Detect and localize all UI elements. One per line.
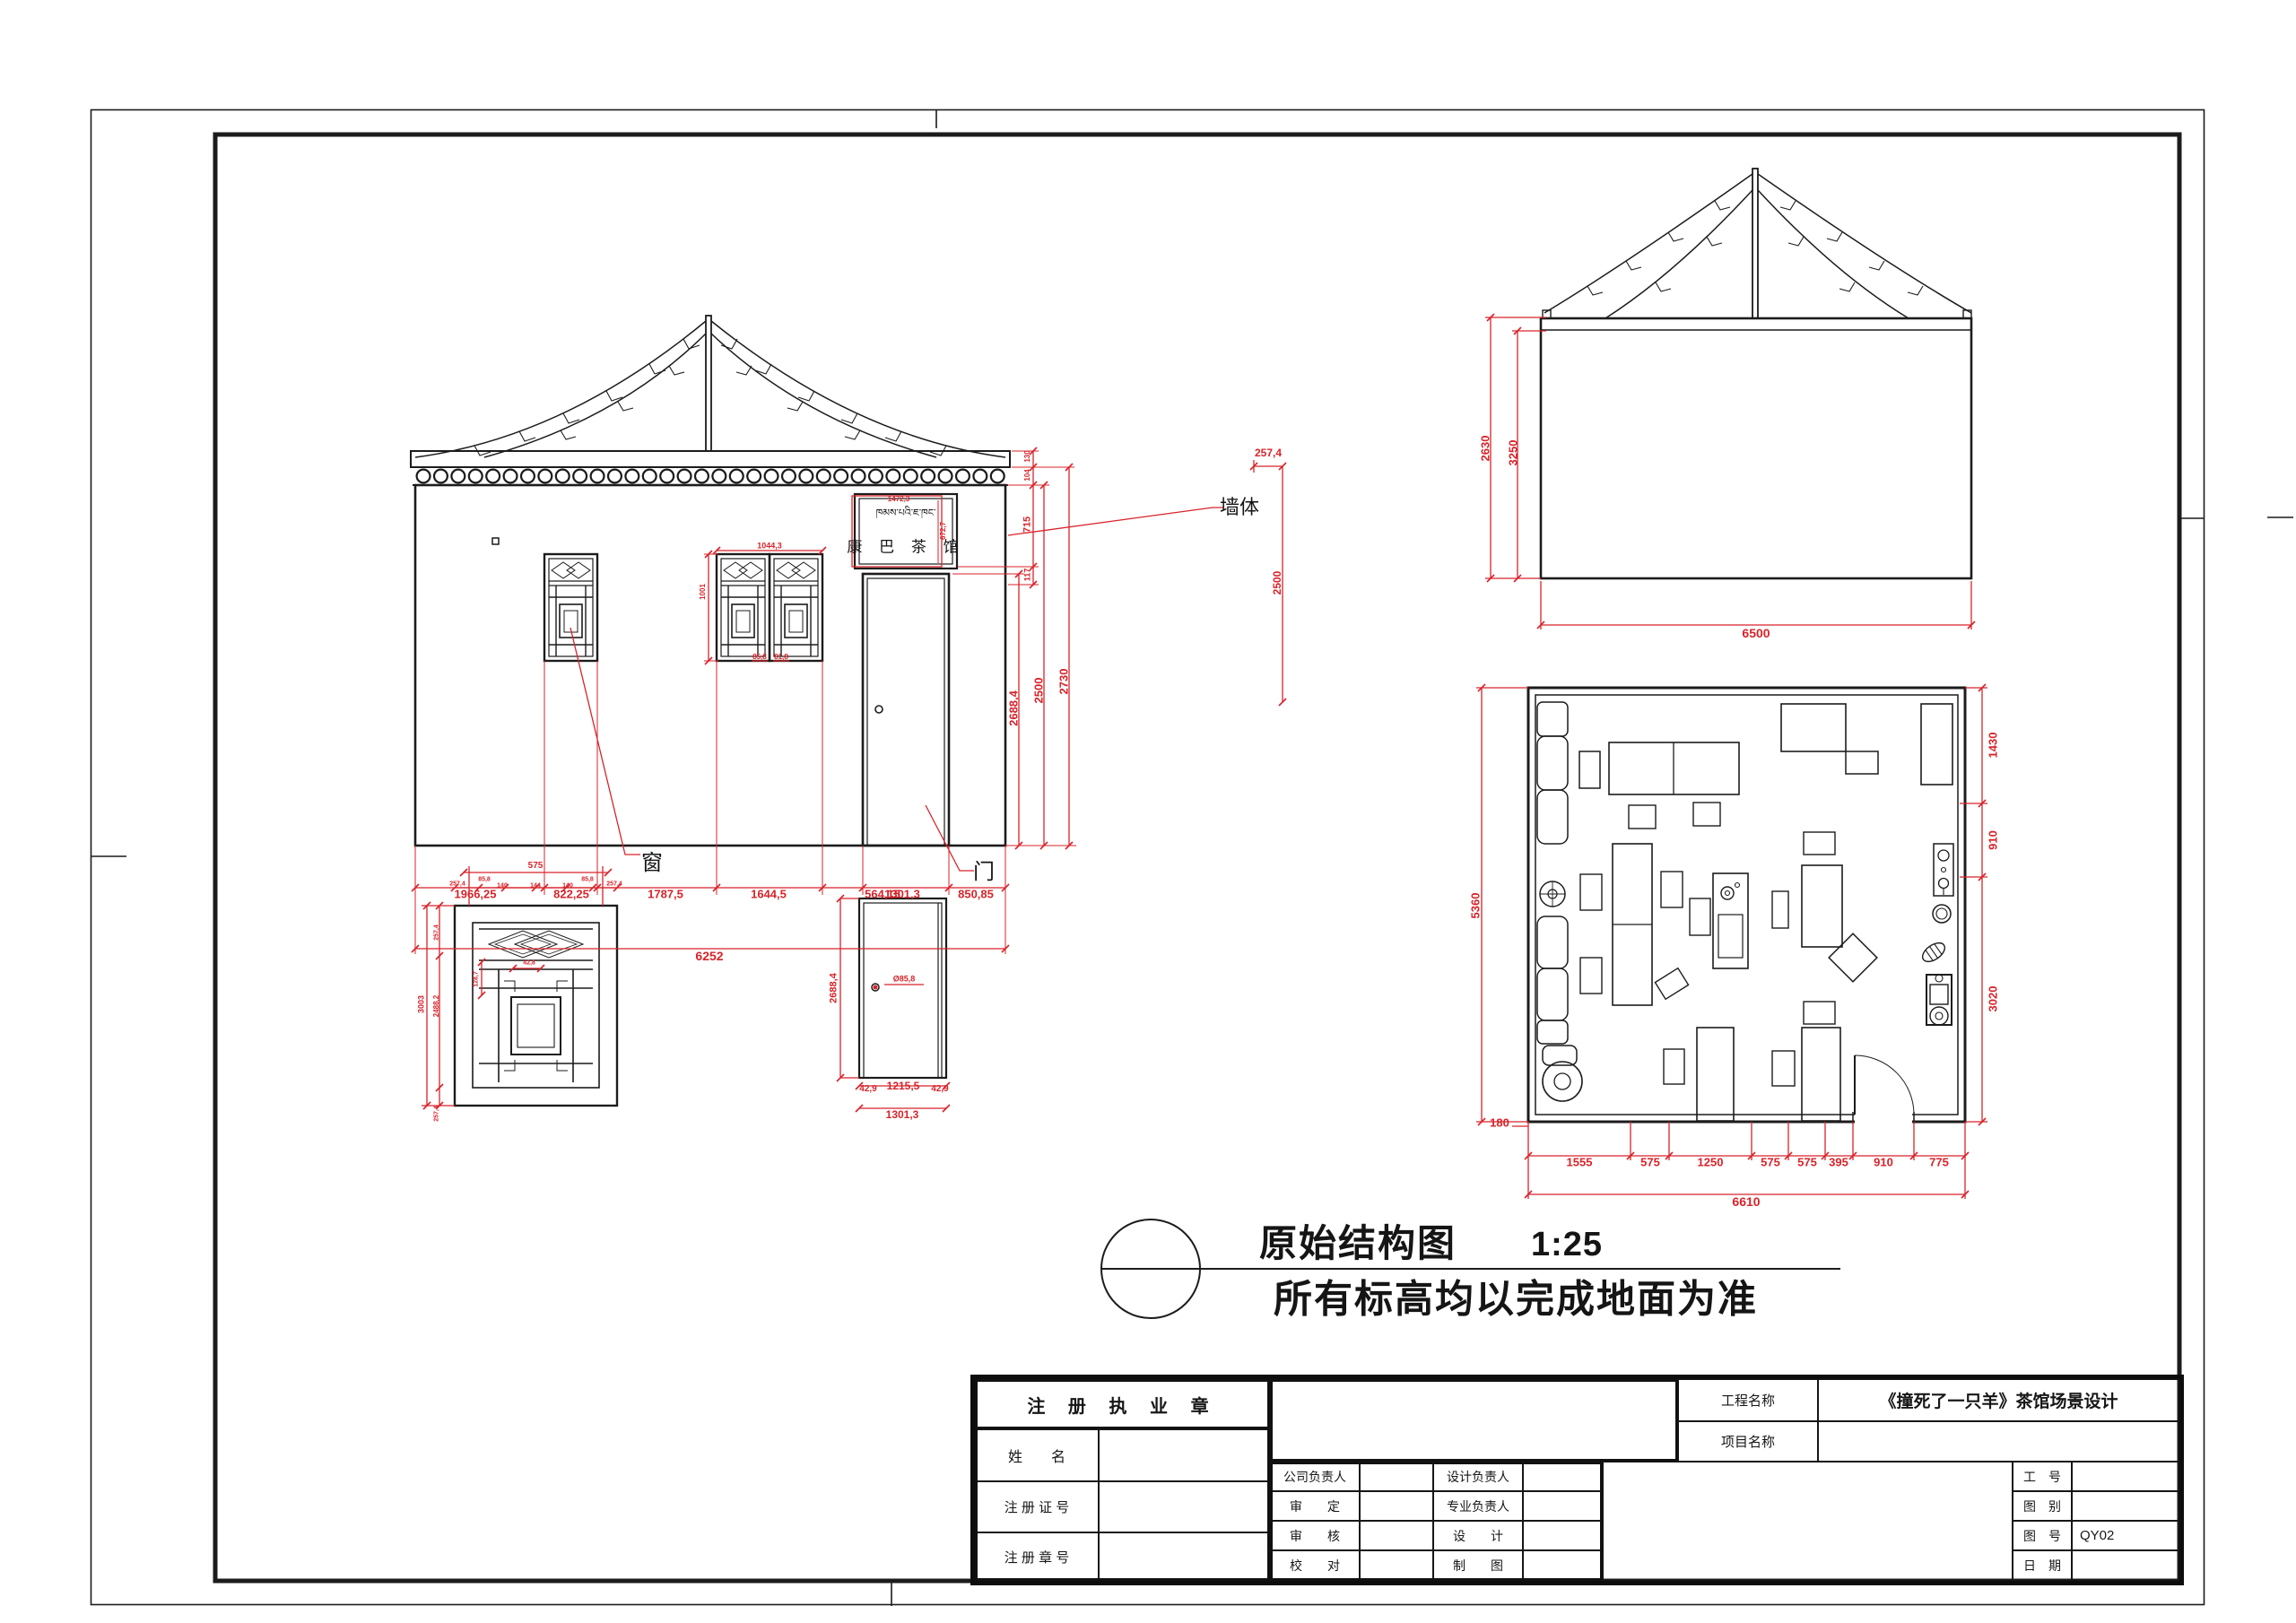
dim-label: 130	[1024, 450, 1031, 462]
dim-label: 2500	[1033, 678, 1045, 704]
dim-label: 1555	[1567, 1157, 1593, 1168]
dim-label: 850,85	[958, 889, 994, 900]
sign-tibetan-text: ཁམས་པའི་ཇ་ཁང་	[876, 509, 936, 519]
dim-label: 1644,5	[751, 889, 787, 900]
dim-label: 1787,5	[648, 889, 683, 900]
dim-label: 257,4	[1255, 447, 1282, 458]
dim-label: 104	[1024, 469, 1031, 481]
front-elevation-drawing	[411, 316, 1010, 846]
dim-label: 117	[1024, 568, 1032, 582]
dim-label: 3003	[418, 995, 426, 1013]
dim-label: 257,4	[449, 881, 465, 888]
dim-label: 575	[528, 862, 544, 871]
dim-label: 81,8	[774, 654, 788, 661]
dim-label: 1430	[1987, 733, 1999, 759]
dim-label: 85,8	[478, 877, 491, 883]
dim-label: 775	[1929, 1157, 1949, 1168]
dim-label: 6252	[695, 950, 723, 962]
dim-label: 42,9	[931, 1085, 948, 1094]
dim-label: 42,9	[859, 1085, 876, 1094]
door-callout-label: 门	[973, 862, 995, 883]
dim-label: 144	[530, 883, 541, 890]
wall-callout-label: 墙体	[1220, 498, 1259, 517]
dim-label: 6500	[1742, 627, 1770, 639]
dim-label: 6610	[1732, 1195, 1760, 1208]
drawing-sheet: 1966,25 822,25 1787,5 1644,5 564,15 1301…	[0, 0, 2296, 1623]
dim-label: 715	[1023, 516, 1033, 533]
dimension-lines	[412, 314, 1987, 1199]
dim-label: 128,7	[474, 971, 480, 987]
dim-label: 2688,4	[830, 973, 839, 1003]
dim-label: 822,25	[553, 889, 589, 900]
drawing-subtitle: 所有标高均以完成地面为准	[1274, 1281, 1758, 1320]
dim-label: 140	[562, 883, 573, 890]
dim-label: 575	[1797, 1157, 1817, 1168]
dim-label: 2488,2	[433, 995, 440, 1017]
door-detail-drawing	[859, 898, 946, 1078]
titleblock-outer-border	[970, 1375, 2184, 1585]
dim-label: 2730	[1058, 669, 1070, 695]
title-block: 注 册 执 业 章 姓 名 注 册 证 号 注 册 章 号 公司负责人 设计负责…	[975, 1379, 2179, 1581]
dim-label: 2500	[1272, 571, 1283, 595]
window-detail-drawing	[455, 906, 617, 1106]
dim-label: Ø85,8	[893, 976, 916, 984]
dim-label: 910	[1874, 1157, 1893, 1168]
dim-label: 1472,3	[888, 496, 909, 503]
window-callout-label: 窗	[641, 853, 663, 874]
dim-label: 257,4	[606, 881, 622, 888]
floor-plan-drawing	[1528, 688, 1965, 1124]
dim-label: 257,4	[434, 924, 440, 941]
dim-label: 1966,25	[455, 889, 497, 900]
dim-label: 910	[1987, 830, 1999, 850]
side-elevation-drawing	[1541, 169, 1971, 578]
dim-label: 1001	[700, 584, 707, 600]
dim-label: 2688,4	[1008, 690, 1020, 726]
dim-label: 1301,3	[886, 1109, 919, 1120]
dim-label: 3020	[1987, 986, 1999, 1012]
dim-label: 1044,3	[757, 542, 782, 551]
dim-label: 672,7	[940, 522, 947, 540]
dim-label: 2630	[1480, 436, 1492, 462]
dim-label: 42,8	[523, 960, 535, 967]
drawing-title: 原始结构图	[1259, 1225, 1457, 1263]
dim-label: 1250	[1698, 1157, 1724, 1168]
dim-label: 85,8	[581, 877, 594, 883]
dim-label: 140	[497, 883, 508, 890]
dim-label: 575	[1761, 1157, 1780, 1168]
dim-label: 3250	[1508, 440, 1519, 466]
dim-label: 85,8	[752, 654, 767, 661]
drawing-scale: 1:25	[1531, 1228, 1603, 1262]
dim-label: 180	[1490, 1117, 1509, 1129]
dim-label: 5360	[1470, 893, 1482, 919]
sign-chinese-text: 康 巴 茶 馆	[847, 540, 964, 555]
dim-label: 257,4	[434, 1106, 440, 1122]
dim-label: 575	[1640, 1157, 1660, 1168]
dim-label: 1301,3	[884, 889, 920, 900]
dim-label: 395	[1829, 1157, 1848, 1168]
dim-label: 1215,5	[887, 1081, 920, 1091]
